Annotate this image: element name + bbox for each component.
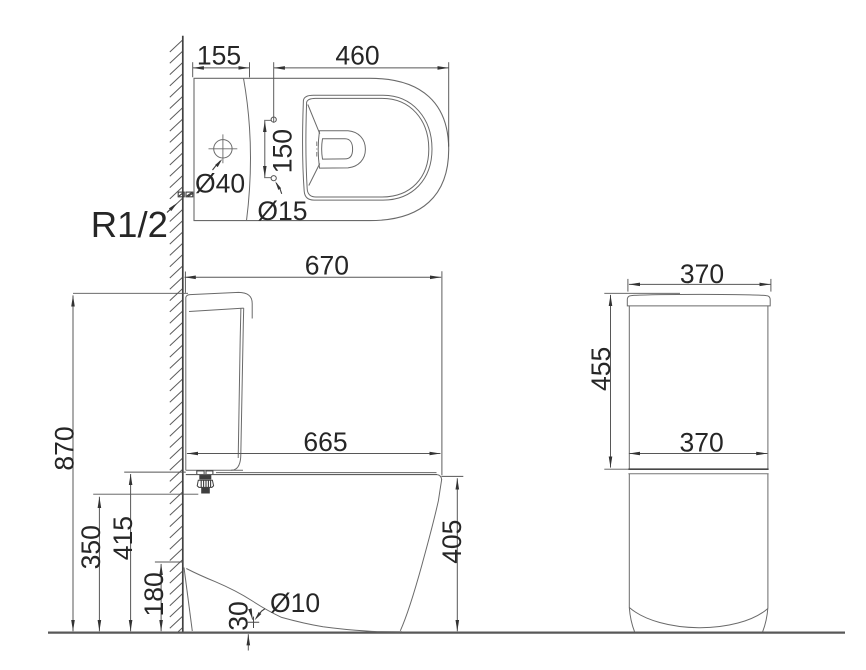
svg-text:Ø40: Ø40 — [195, 169, 245, 199]
svg-text:415: 415 — [108, 516, 138, 560]
svg-text:Ø10: Ø10 — [270, 588, 320, 618]
svg-text:Ø15: Ø15 — [257, 196, 307, 226]
svg-text:350: 350 — [76, 525, 106, 569]
svg-text:460: 460 — [335, 41, 379, 71]
svg-text:870: 870 — [50, 426, 80, 470]
svg-text:155: 155 — [197, 41, 241, 71]
svg-text:370: 370 — [679, 427, 723, 457]
svg-text:180: 180 — [139, 572, 169, 616]
svg-text:665: 665 — [303, 427, 347, 457]
svg-text:370: 370 — [680, 259, 724, 289]
svg-text:30: 30 — [224, 601, 254, 630]
svg-text:405: 405 — [437, 520, 467, 564]
svg-text:150: 150 — [267, 129, 297, 173]
svg-text:670: 670 — [305, 251, 349, 281]
svg-text:455: 455 — [586, 347, 616, 391]
svg-text:R1/2: R1/2 — [91, 204, 168, 245]
